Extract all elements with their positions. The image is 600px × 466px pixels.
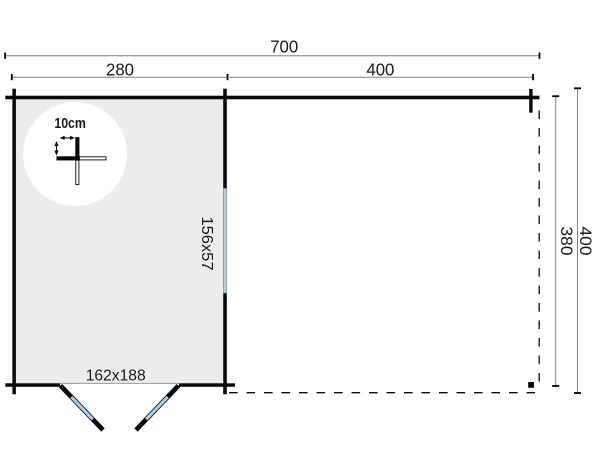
svg-text:162x188: 162x188 — [86, 368, 146, 385]
svg-text:400: 400 — [576, 227, 595, 256]
svg-text:700: 700 — [270, 37, 298, 57]
svg-text:156x57: 156x57 — [198, 217, 215, 271]
svg-text:10cm: 10cm — [54, 116, 86, 132]
svg-text:280: 280 — [106, 59, 134, 79]
svg-text:380: 380 — [557, 227, 576, 256]
svg-text:400: 400 — [366, 59, 394, 79]
